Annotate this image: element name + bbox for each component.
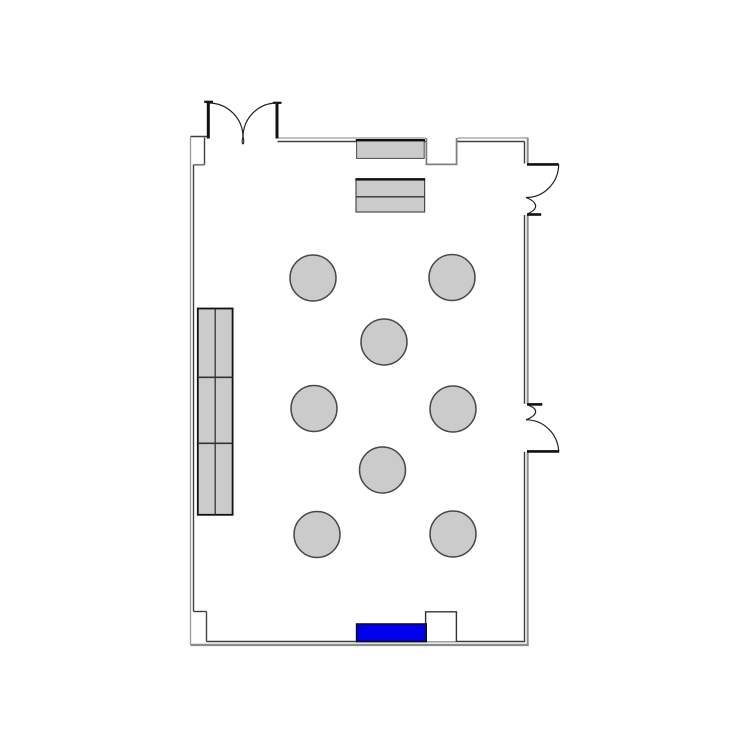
- table-3[interactable]: [361, 319, 407, 365]
- floorplan-canvas: [0, 0, 750, 750]
- door-lower-right-hook: [526, 405, 536, 420]
- table-8[interactable]: [430, 511, 476, 557]
- double-door-cusp-tail-right: [243, 137, 244, 145]
- floorplan-drawing: [0, 0, 750, 750]
- door-upper-right-swing-arc: [526, 164, 559, 197]
- table-5[interactable]: [430, 386, 476, 432]
- door-upper-right-hook: [526, 198, 536, 214]
- table-6[interactable]: [360, 447, 406, 493]
- double-door-left-swing-arc: [209, 103, 244, 137]
- table-7[interactable]: [294, 512, 340, 558]
- door-lower-right-swing-arc: [526, 420, 559, 451]
- table-1[interactable]: [290, 255, 336, 301]
- cabinet-freestanding[interactable]: [356, 180, 425, 212]
- double-door-right-swing-arc: [243, 103, 277, 137]
- table-4[interactable]: [291, 386, 337, 432]
- counter-top-wall[interactable]: [357, 141, 425, 159]
- wall-notch-bottom: [426, 612, 457, 642]
- highlighted-unit-blue[interactable]: [357, 624, 427, 642]
- wall-notch-top: [426, 138, 456, 164]
- table-2[interactable]: [429, 255, 475, 301]
